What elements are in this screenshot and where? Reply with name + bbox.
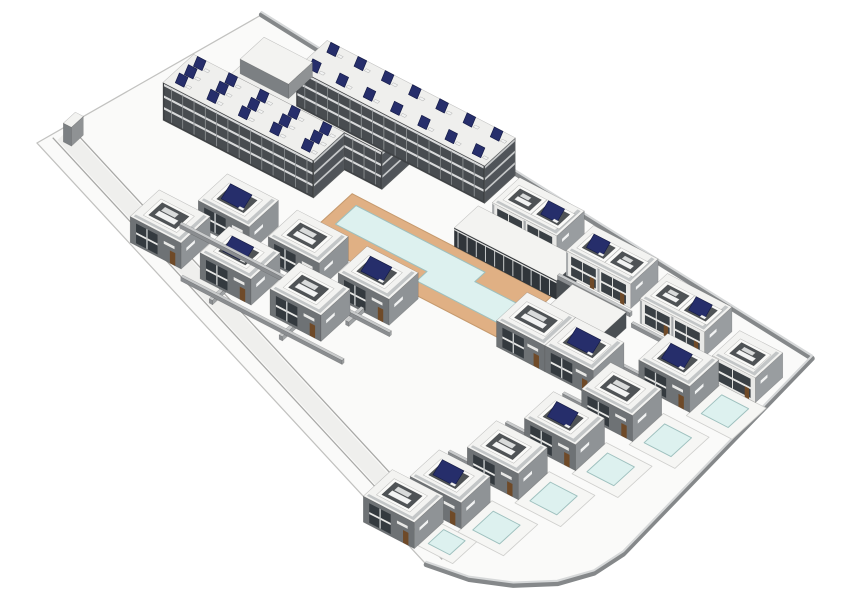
site-3d-view [0, 0, 849, 600]
architectural-render [0, 0, 849, 600]
